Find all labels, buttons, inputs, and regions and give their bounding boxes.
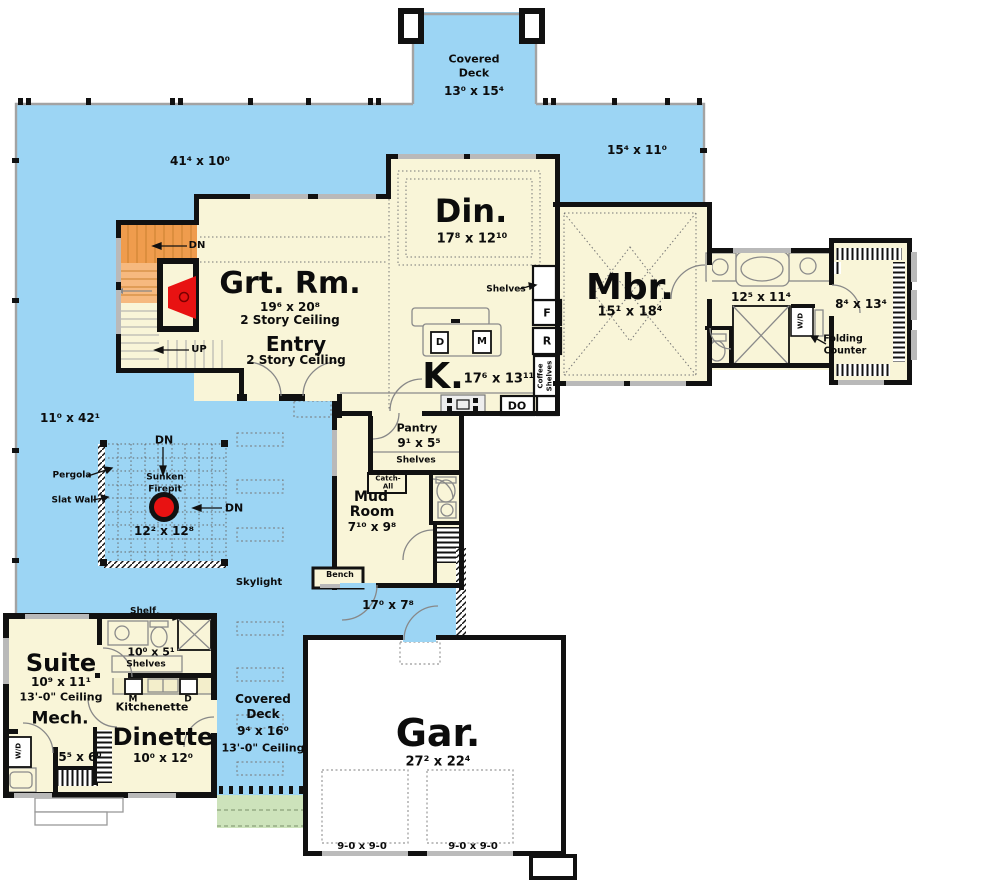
sunken-firepit-label-1: Sunken xyxy=(146,474,184,483)
dinette-name: Dinette xyxy=(113,725,214,749)
range xyxy=(441,395,485,413)
lower-deck-dims: 17⁰ x 7⁸ xyxy=(362,599,414,611)
west-deck-dims: 11⁰ x 42¹ xyxy=(40,412,100,424)
great-room-ceiling: 2 Story Ceiling xyxy=(240,314,340,326)
floor-plan: Covered Deck 13⁰ x 15⁴ 41⁴ x 10⁰ 15⁴ x 1… xyxy=(0,0,1000,889)
dinette-dims: 10⁰ x 12⁰ xyxy=(133,752,193,764)
right-deck-dims: 15⁴ x 11⁰ xyxy=(607,144,667,156)
island-faucet xyxy=(451,319,460,323)
skylight-label: Skylight xyxy=(236,578,282,588)
patio-green xyxy=(217,795,305,828)
sunken-firepit-label-2: Firepit xyxy=(148,486,182,495)
garage-door-right-dims: 9-0 x 9-0 xyxy=(448,842,498,852)
folding-counter-2: Counter xyxy=(824,346,867,356)
pantry-dims: 9¹ x 5⁵ xyxy=(397,437,440,449)
garage-step xyxy=(531,856,575,878)
coffee-shelves-2: Shelves xyxy=(547,361,554,392)
suite-dims: 10⁹ x 11¹ xyxy=(31,676,91,688)
island-dishwasher-label: D xyxy=(436,338,444,348)
south-deck-label-2: Deck xyxy=(246,708,279,720)
dinette-closet-rod-h xyxy=(58,770,98,786)
kitchenette-dishwasher: D xyxy=(184,696,191,705)
top-deck-label-1: Covered xyxy=(448,54,499,65)
stairs-up: UP xyxy=(191,345,206,355)
garage-door-left-dims: 9-0 x 9-0 xyxy=(337,842,387,852)
pergola-bottom-hatch xyxy=(104,561,226,568)
top-deck-label-2: Deck xyxy=(459,68,489,79)
wd-mech-label: W/D xyxy=(16,743,23,759)
kitchen-name: K. xyxy=(422,359,464,395)
folding-counter-1: Folding xyxy=(823,334,863,344)
mud-room-dims: 7¹⁰ x 9⁸ xyxy=(348,521,397,533)
coffee-shelves-1: Coffee xyxy=(538,363,545,388)
pergola-dn-top: DN xyxy=(155,435,173,446)
slat-wall-label: Slat Wall xyxy=(52,497,97,506)
suite-bath-dims: 10⁰ x 5¹ xyxy=(127,647,174,658)
south-deck-label-1: Covered xyxy=(235,693,291,705)
sunken-firepit xyxy=(149,492,179,522)
suite-ceiling: 13'-0" Ceiling xyxy=(19,692,102,703)
kitchenette-microwave: M xyxy=(129,696,138,705)
double-oven-label: DO xyxy=(508,401,526,412)
wd-bath-label: W/D xyxy=(798,313,805,329)
slat-wall-hatch xyxy=(98,444,105,566)
mud-room-name-1: Mud xyxy=(354,490,388,504)
exterior-steps xyxy=(35,798,123,825)
garage-name: Gar. xyxy=(396,714,481,752)
south-deck-dims: 9⁴ x 16⁰ xyxy=(237,725,289,737)
pantry-shelves-label: Shelves xyxy=(396,457,435,466)
stairs-dn: DN xyxy=(189,241,206,251)
dining-dims: 17⁸ x 12¹⁰ xyxy=(437,233,508,246)
master-dims: 15¹ x 18⁴ xyxy=(597,306,662,319)
freezer-label: F xyxy=(543,308,551,319)
upper-deck-dims: 41⁴ x 10⁰ xyxy=(170,155,230,167)
mech-dims: 5⁵ x 6⁰ xyxy=(58,751,101,763)
master-name: Mbr. xyxy=(586,270,674,306)
shelf-label: Shelf xyxy=(130,608,156,617)
wic-dims: 8⁴ x 13⁴ xyxy=(835,298,887,310)
entry-ceiling: 2 Story Ceiling xyxy=(246,354,346,366)
suite-bath-shelves: Shelves xyxy=(126,661,165,670)
pantry-name: Pantry xyxy=(397,423,438,434)
pergola-label: Pergola xyxy=(53,472,92,481)
entry-name: Entry xyxy=(266,334,326,354)
bench-label: Bench xyxy=(326,571,354,579)
pergola-dn-side: DN xyxy=(225,503,243,514)
island-microwave-label: M xyxy=(477,337,487,347)
pergola-dims: 12² x 12⁸ xyxy=(134,525,194,537)
master-bath-dims: 12⁵ x 11⁴ xyxy=(731,291,791,303)
mech-name: Mech. xyxy=(31,711,88,728)
refrigerator-label: R xyxy=(543,336,551,347)
dining-name: Din. xyxy=(435,195,507,227)
suite-name: Suite xyxy=(26,651,96,675)
great-room-name: Grt. Rm. xyxy=(219,269,360,299)
south-deck-ceiling: 13'-0" Ceiling xyxy=(221,743,304,754)
fireplace xyxy=(157,258,199,332)
catch-all-label-1: Catch- xyxy=(375,476,400,483)
kitchenette-name: Kitchenette xyxy=(116,702,189,713)
deck-board-ticks xyxy=(219,786,303,794)
garage-dims: 27² x 22⁴ xyxy=(405,756,470,769)
kitchen-dims: 17⁶ x 13¹¹ xyxy=(464,373,535,386)
great-room-dims: 19⁶ x 20⁸ xyxy=(260,301,320,313)
mud-room-name-2: Room xyxy=(350,505,395,519)
dining-shelves-label: Shelves xyxy=(486,286,525,295)
top-deck-dims: 13⁰ x 15⁴ xyxy=(444,85,504,97)
